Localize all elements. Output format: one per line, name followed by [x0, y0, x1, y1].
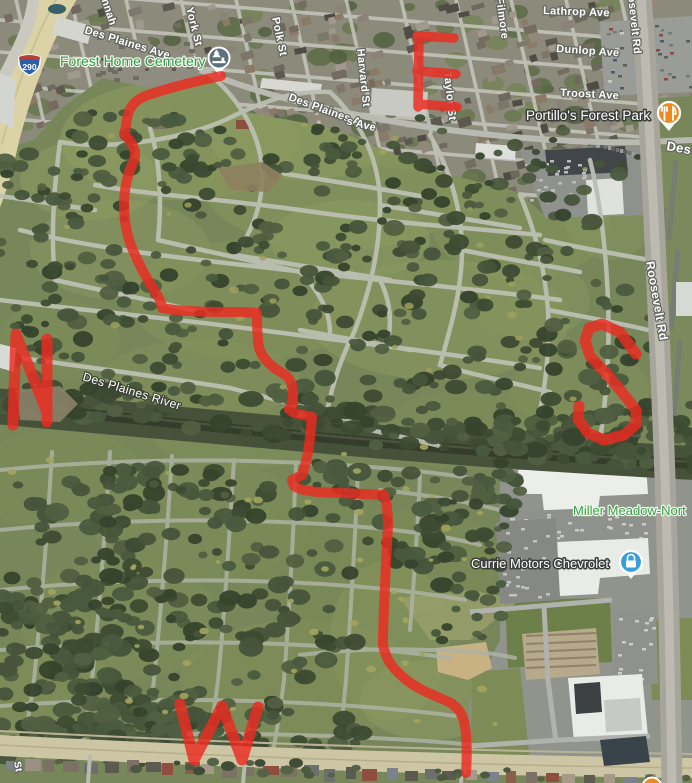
svg-text:Lathrop Ave: Lathrop Ave	[543, 5, 610, 19]
svg-text:Forest Home Cemetery: Forest Home Cemetery	[60, 53, 205, 69]
svg-text:290: 290	[22, 62, 36, 72]
svg-text:Currie Motors Chevrolet: Currie Motors Chevrolet	[471, 556, 609, 571]
svg-text:Portillo's Forest Park: Portillo's Forest Park	[526, 108, 650, 123]
svg-text:Miller Meadow-Nort: Miller Meadow-Nort	[573, 503, 686, 518]
